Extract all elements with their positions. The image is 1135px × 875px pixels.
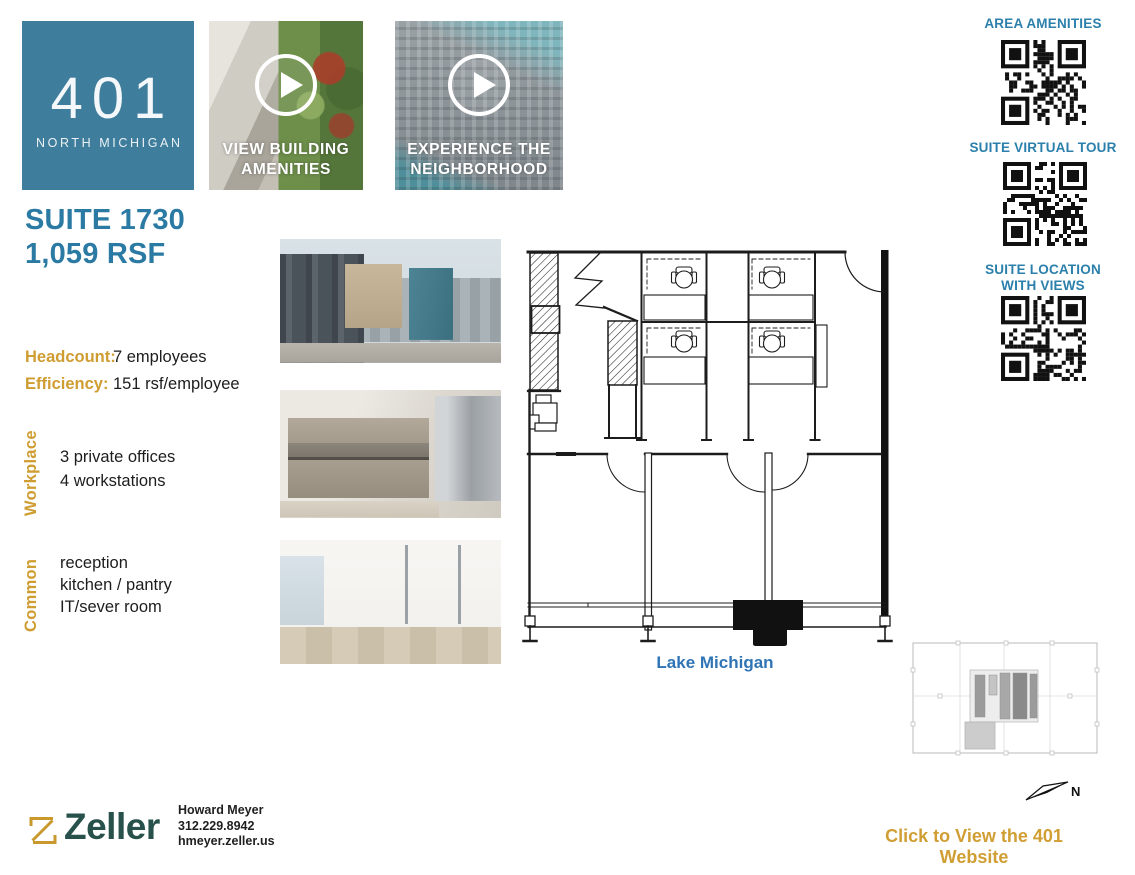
qr-label-area-amenities: AREA AMENITIES bbox=[968, 16, 1118, 32]
photo-kitchen-pantry bbox=[280, 390, 501, 518]
flyer-page: 401 NORTH MICHIGAN VIEW BUILDING AMENITI… bbox=[0, 0, 1135, 875]
video-label-line1: EXPERIENCE THE bbox=[395, 140, 563, 160]
stat-headcount: Headcount:7 employees bbox=[25, 344, 240, 371]
suite-floorplan bbox=[520, 245, 910, 650]
qr-label-line2: WITH VIEWS bbox=[968, 278, 1118, 294]
suite-heading: SUITE 1730 1,059 RSF bbox=[25, 204, 185, 271]
suite-size: 1,059 RSF bbox=[25, 238, 185, 272]
stat-efficiency: Efficiency:151 rsf/employee bbox=[25, 371, 240, 398]
zeller-wordmark: Zeller bbox=[64, 806, 160, 848]
video-card-building-amenities[interactable]: VIEW BUILDING AMENITIES bbox=[209, 21, 363, 190]
stat-headcount-label: Headcount: bbox=[25, 344, 113, 371]
suite-number: SUITE 1730 bbox=[25, 204, 185, 238]
building-key-plan bbox=[910, 638, 1102, 762]
qr-label-suite-location: SUITE LOCATION WITH VIEWS bbox=[968, 262, 1118, 294]
website-link[interactable]: Click to View the 401 Website bbox=[858, 826, 1090, 868]
qr-label-suite-virtual-tour: SUITE VIRTUAL TOUR bbox=[968, 140, 1118, 156]
contact-name: Howard Meyer bbox=[178, 803, 275, 819]
section-workplace-label: Workplace bbox=[22, 430, 41, 516]
photo-river-view bbox=[280, 239, 501, 363]
printer-equipment bbox=[530, 395, 557, 431]
suite-stats: Headcount:7 employees Efficiency:151 rsf… bbox=[25, 344, 240, 397]
zeller-logo-mark bbox=[22, 812, 60, 850]
common-item: reception bbox=[60, 552, 172, 574]
video-label-line2: AMENITIES bbox=[209, 160, 363, 180]
structural-column bbox=[733, 600, 803, 646]
building-name: NORTH MICHIGAN bbox=[22, 136, 194, 150]
broker-contact: Howard Meyer 312.229.8942 hmeyer.zeller.… bbox=[178, 803, 275, 850]
contact-phone: 312.229.8942 bbox=[178, 819, 275, 835]
floorplan-window-wall bbox=[524, 603, 892, 641]
section-common-label: Common bbox=[22, 556, 41, 632]
video-label: VIEW BUILDING AMENITIES bbox=[209, 140, 363, 180]
north-arrow-icon: N bbox=[1020, 770, 1084, 808]
building-number: 401 bbox=[22, 65, 194, 132]
stat-efficiency-value: 151 rsf/employee bbox=[113, 375, 240, 393]
photo-office-interior bbox=[280, 540, 501, 664]
qr-code-suite-virtual-tour[interactable] bbox=[1003, 162, 1087, 246]
workplace-item: 4 workstations bbox=[60, 470, 175, 494]
stat-headcount-value: 7 employees bbox=[113, 348, 207, 366]
floorplan-workstations bbox=[637, 252, 827, 440]
window-mullion-anchor bbox=[879, 616, 892, 641]
window-mullion-anchor bbox=[642, 616, 655, 641]
qr-label-line1: SUITE LOCATION bbox=[968, 262, 1118, 278]
video-label: EXPERIENCE THE NEIGHBORHOOD bbox=[395, 140, 563, 180]
common-item: IT/sever room bbox=[60, 596, 172, 618]
video-label-line1: VIEW BUILDING bbox=[209, 140, 363, 160]
workplace-item: 3 private offices bbox=[60, 446, 175, 470]
common-items: reception kitchen / pantry IT/sever room bbox=[60, 552, 172, 618]
play-icon bbox=[255, 54, 317, 116]
contact-email[interactable]: hmeyer.zeller.us bbox=[178, 834, 275, 850]
highlighted-suite-location bbox=[965, 722, 995, 749]
play-icon bbox=[448, 54, 510, 116]
common-item: kitchen / pantry bbox=[60, 574, 172, 596]
floorplan-walls bbox=[528, 250, 889, 627]
stat-efficiency-label: Efficiency: bbox=[25, 371, 113, 398]
workplace-items: 3 private offices 4 workstations bbox=[60, 446, 175, 493]
qr-code-area-amenities[interactable] bbox=[1001, 40, 1086, 125]
building-badge: 401 NORTH MICHIGAN bbox=[22, 21, 194, 190]
video-card-neighborhood[interactable]: EXPERIENCE THE NEIGHBORHOOD bbox=[395, 21, 563, 190]
window-mullion-anchor bbox=[524, 616, 537, 641]
floorplan-caption: Lake Michigan bbox=[520, 653, 910, 673]
north-label: N bbox=[1071, 784, 1080, 799]
qr-code-suite-location-views[interactable] bbox=[1001, 296, 1086, 381]
video-label-line2: NEIGHBORHOOD bbox=[395, 160, 563, 180]
bifold-closet-door bbox=[575, 253, 604, 308]
